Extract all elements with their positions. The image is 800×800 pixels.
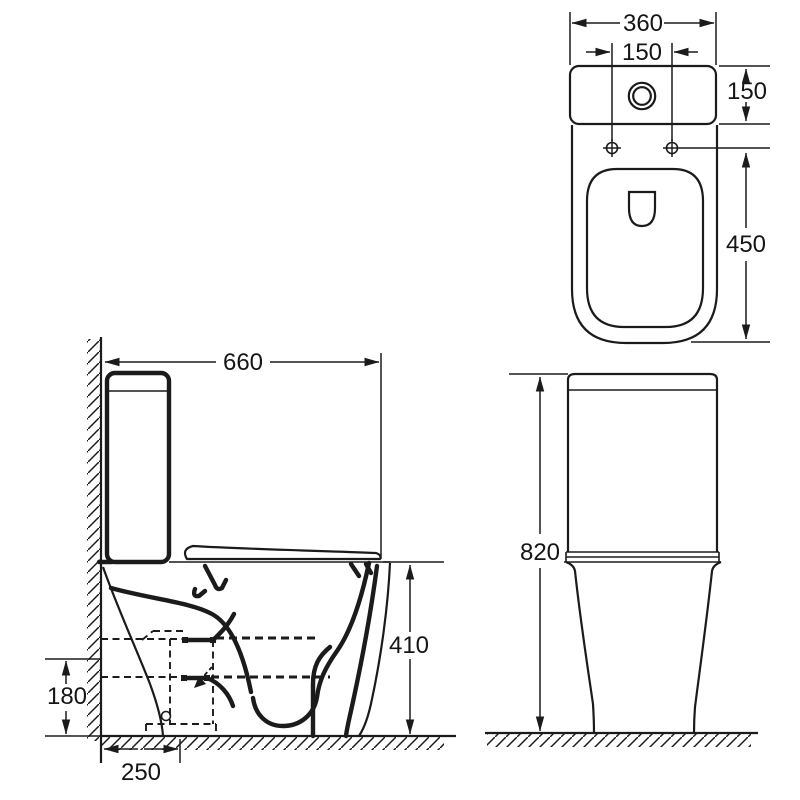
top-view: 360 150 150 450 — [570, 10, 770, 343]
pan-plan-outline — [572, 125, 717, 343]
toilet-technical-drawing: 360 150 150 450 — [0, 0, 800, 800]
cistern-top-outline — [570, 66, 716, 124]
flush-button-inner — [633, 87, 651, 105]
hidden-trap-lines — [101, 614, 330, 735]
wall-hatching — [87, 339, 101, 741]
hinge-fitting — [194, 589, 205, 596]
seat-lid-profile — [185, 546, 381, 559]
dim-label-total-height: 820 — [520, 539, 560, 566]
dim-label-pan-length: 450 — [726, 231, 766, 258]
front-floor-hatching — [487, 734, 751, 747]
fixing-hole-left — [603, 139, 621, 157]
cistern-side-outline — [107, 373, 169, 562]
fixing-hole-right — [663, 139, 681, 157]
side-view: 660 — [45, 337, 456, 786]
side-floor-hatching — [102, 737, 444, 750]
dim-label-outlet-offset: 250 — [121, 759, 161, 786]
flush-outlet-shape — [629, 192, 655, 226]
drawing-sheet: 360 150 150 450 — [0, 0, 800, 800]
seat-hinge — [205, 566, 226, 589]
front-view: 820 — [485, 374, 758, 747]
pedestal-left-edge — [566, 562, 594, 733]
outlet-detail-circle — [162, 712, 171, 721]
dim-label-outlet-height: 180 — [47, 683, 87, 710]
right-extension-lines — [681, 66, 770, 342]
seat-front-lines — [564, 552, 721, 562]
dim-label-side-depth: 660 — [223, 349, 263, 376]
cistern-front-outline — [568, 374, 717, 552]
pedestal-right-edge — [694, 562, 721, 733]
dim-label-top-width: 360 — [623, 10, 663, 37]
trapway-front — [313, 647, 330, 736]
dim-label-rim-height: 410 — [389, 632, 429, 659]
dim-label-cistern-depth: 150 — [727, 78, 767, 105]
dim-label-hole-spacing: 150 — [622, 39, 662, 66]
